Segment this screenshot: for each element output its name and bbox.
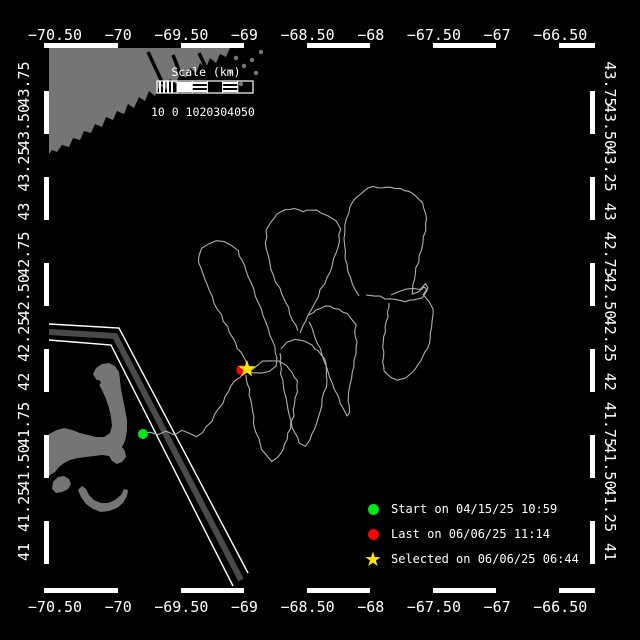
glider-track-segment[interactable] (199, 241, 277, 373)
lat-tick-label-right: 41.75 (601, 402, 619, 447)
lat-tick-label-right: 42.25 (601, 317, 619, 362)
lon-tick-label-bottom: −69.50 (154, 598, 208, 616)
scale-hatch-stripe (163, 81, 165, 93)
lon-tick-label-bottom: −69 (231, 598, 258, 616)
lon-tick-label-top: −69.50 (154, 26, 208, 44)
lon-tick-label-bottom: −68.50 (281, 598, 335, 616)
lon-tick-label-bottom: −70.50 (28, 598, 82, 616)
lat-tick-label-left: 43 (15, 203, 33, 221)
islet (234, 56, 238, 60)
lon-tick-label-top: −67 (484, 26, 511, 44)
lon-tick-label-bottom: −67 (484, 598, 511, 616)
glider-track-segment[interactable] (265, 209, 340, 334)
lat-tick-label-left: 41 (15, 543, 33, 561)
scale-bar-title: Scale (km) (171, 65, 240, 79)
lon-tick-label-top: −66.50 (533, 26, 587, 44)
scale-solid-segment (177, 82, 192, 92)
lat-tick-label-left: 41.25 (15, 487, 33, 532)
lon-tick-label-top: −68.50 (281, 26, 335, 44)
glider-track-segment[interactable] (344, 187, 427, 302)
scale-bar-tick-labels: 10 0 1020304050 (151, 105, 255, 119)
lat-tick-label-right: 43.75 (601, 61, 619, 106)
lat-tick-label-left: 41.50 (15, 444, 33, 489)
lat-tick-label-right: 42 (601, 373, 619, 391)
scale-striped-segment (223, 86, 238, 88)
lon-tick-label-top: −70 (105, 26, 132, 44)
lat-tick-label-right: 42.50 (601, 274, 619, 319)
scale-striped-segment (223, 90, 238, 92)
glider-track-segment[interactable] (142, 373, 243, 437)
lat-tick-label-left: 42.50 (15, 274, 33, 319)
start-position-marker[interactable] (138, 429, 148, 439)
scale-hatch-stripe (167, 81, 169, 93)
lat-tick-label-right: 41.50 (601, 444, 619, 489)
lon-tick-label-top: −70.50 (28, 26, 82, 44)
lon-tick-label-top: −69 (231, 26, 258, 44)
lon-tick-label-bottom: −67.50 (407, 598, 461, 616)
islet (242, 64, 246, 68)
track-markers-layer[interactable] (138, 360, 256, 439)
lon-tick-label-bottom: −68 (357, 598, 384, 616)
lat-tick-label-left: 43.50 (15, 104, 33, 149)
lon-tick-label-bottom: −66.50 (533, 598, 587, 616)
lat-tick-label-left: 42.75 (15, 232, 33, 277)
scale-striped-segment (192, 82, 207, 84)
lat-tick-label-left: 42 (15, 373, 33, 391)
lat-tick-label-right: 43 (601, 203, 619, 221)
lat-tick-label-right: 43.50 (601, 104, 619, 149)
glider-track-segment[interactable] (246, 361, 297, 462)
lat-tick-label-right: 43.25 (601, 147, 619, 192)
islet (250, 58, 254, 62)
islet (259, 50, 263, 54)
lat-tick-label-left: 43.25 (15, 147, 33, 192)
nantucket-island (78, 486, 128, 512)
lat-tick-label-right: 41.25 (601, 487, 619, 532)
lat-tick-label-left: 41.75 (15, 402, 33, 447)
lon-tick-label-top: −68 (357, 26, 384, 44)
islet (254, 71, 258, 75)
scale-hatch-stripe (171, 81, 173, 93)
scale-striped-segment (192, 90, 207, 92)
map-canvas[interactable]: −70.50−70.50−70−70−69.50−69.50−69−69−68.… (0, 0, 640, 640)
glider-track-layer[interactable] (142, 187, 433, 462)
glider-track-segment[interactable] (309, 306, 357, 416)
scale-striped-segment (192, 86, 207, 88)
map-frame (44, 43, 595, 593)
lat-tick-label-right: 41 (601, 543, 619, 561)
lat-tick-label-right: 42.75 (601, 232, 619, 277)
map-window: −70.50−70.50−70−70−69.50−69.50−69−69−68.… (0, 0, 640, 640)
islet (239, 82, 243, 86)
scale-striped-segment (223, 82, 238, 84)
scale-hatch-stripe (159, 81, 161, 93)
lat-tick-label-left: 42.25 (15, 317, 33, 362)
glider-track-segment[interactable] (383, 284, 434, 381)
glider-track-segment[interactable] (280, 339, 327, 446)
lat-tick-label-left: 43.75 (15, 61, 33, 106)
lon-tick-label-top: −67.50 (407, 26, 461, 44)
lane-edge-line (49, 340, 233, 586)
lon-tick-label-bottom: −70 (105, 598, 132, 616)
marthas-vineyard-island (52, 476, 71, 493)
cape-cod-landmass (49, 363, 127, 476)
